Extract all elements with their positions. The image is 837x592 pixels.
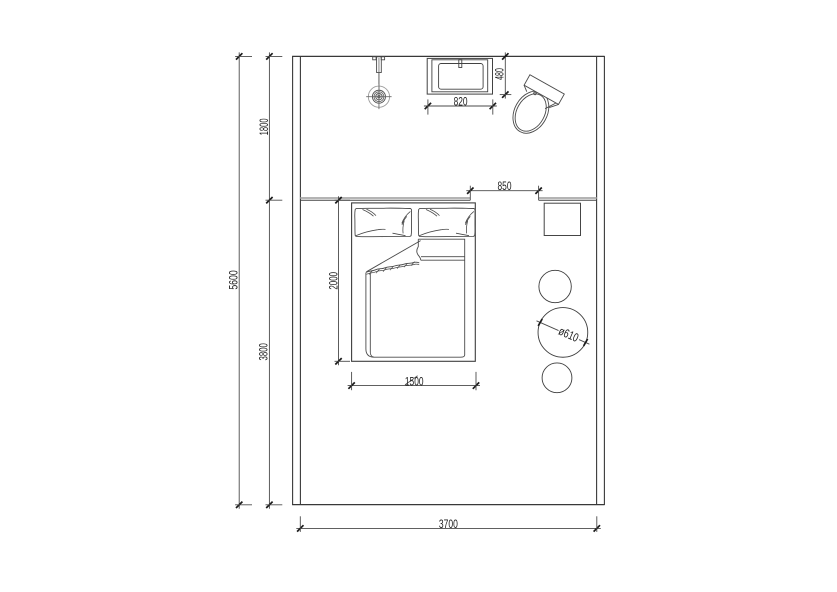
svg-text:1800: 1800 [257, 118, 271, 135]
svg-text:820: 820 [454, 94, 468, 108]
svg-text:1500: 1500 [405, 374, 424, 388]
svg-text:3700: 3700 [439, 517, 458, 531]
svg-text:850: 850 [498, 179, 512, 193]
svg-text:3800: 3800 [257, 343, 271, 361]
svg-text:2000: 2000 [327, 272, 341, 290]
svg-text:5600: 5600 [226, 270, 240, 290]
svg-text:480: 480 [493, 68, 507, 80]
